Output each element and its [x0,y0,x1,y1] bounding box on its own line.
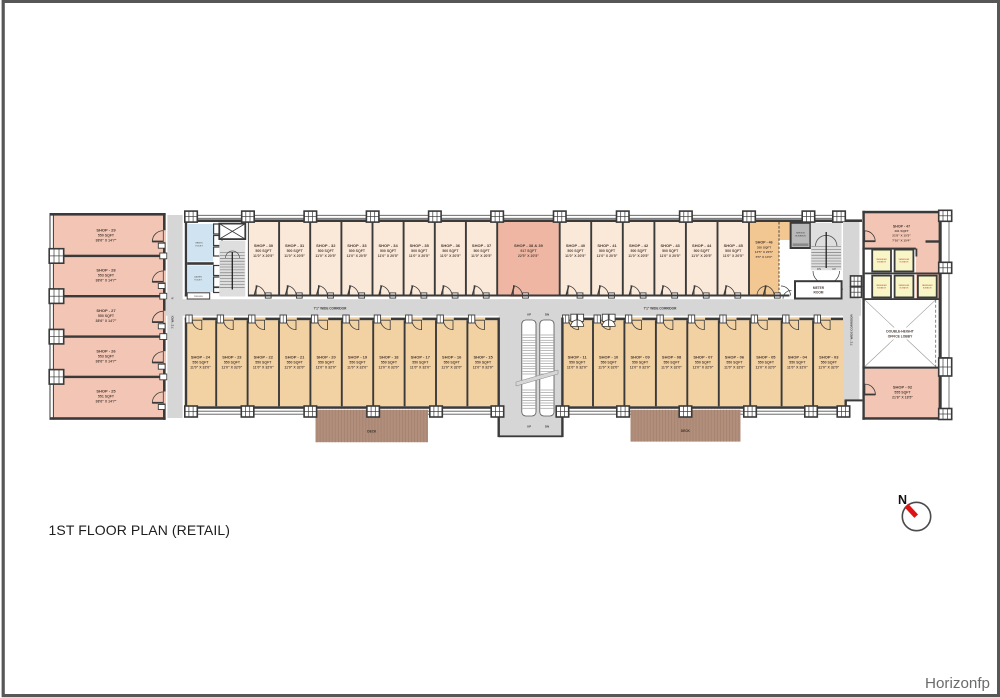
svg-text:550 SQFT: 550 SQFT [255,361,272,365]
svg-text:SHOP - 29: SHOP - 29 [96,227,116,232]
svg-text:SHOP - 43: SHOP - 43 [661,243,681,248]
svg-text:11'0" X 20'5": 11'0" X 20'5" [284,254,305,258]
svg-text:500 SQFT: 500 SQFT [255,249,272,253]
svg-text:500 SQFT: 500 SQFT [473,249,490,253]
svg-text:550 SQFT: 550 SQFT [789,361,806,365]
svg-text:Horizonfp: Horizonfp [925,675,990,692]
svg-text:491 SQFT: 491 SQFT [894,229,908,233]
svg-text:550 SQFT: 550 SQFT [663,361,680,365]
svg-text:DECK: DECK [367,429,377,433]
svg-text:550 SQFT: 550 SQFT [632,361,649,365]
svg-text:11'0" X 32'0": 11'0" X 32'0" [284,366,305,370]
svg-text:11'0" X 32'0": 11'0" X 32'0" [473,366,494,370]
svg-text:DN: DN [545,425,549,429]
svg-text:550 SQFT: 550 SQFT [821,361,838,365]
svg-text:11'0" X 32'0": 11'0" X 32'0" [253,366,274,370]
svg-text:550 SQFT: 550 SQFT [758,361,775,365]
svg-text:11'0" X 20'5": 11'0" X 20'5" [723,254,744,258]
svg-text:SHOP - 27: SHOP - 27 [96,308,116,313]
svg-text:551 SQFT: 551 SQFT [98,395,115,399]
svg-text:SHOP - 31: SHOP - 31 [285,243,305,248]
svg-text:11'0" X 20'5": 11'0" X 20'5" [378,254,399,258]
svg-text:ELEVATOR: ELEVATOR [877,286,887,289]
svg-text:SHOP - 24: SHOP - 24 [191,355,211,360]
svg-text:SHOP - 11: SHOP - 11 [568,355,588,360]
svg-text:5'5" X 14'0": 5'5" X 14'0" [756,255,773,259]
svg-text:500 SQFT: 500 SQFT [411,249,428,253]
svg-text:SHOP - 10: SHOP - 10 [599,355,619,360]
svg-text:550 SQFT: 550 SQFT [444,361,461,365]
svg-text:550 SQFT: 550 SQFT [192,361,209,365]
svg-text:500 SQFT: 500 SQFT [318,249,335,253]
svg-text:11'0" X 32'0": 11'0" X 32'0" [756,366,777,370]
svg-text:11'0" X 20'5": 11'0" X 20'5" [565,254,586,258]
svg-text:11'0" X 32'0": 11'0" X 32'0" [818,366,839,370]
svg-text:11'0" X 32'0": 11'0" X 32'0" [630,366,651,370]
svg-text:7'1" WIDE CORRIDOR: 7'1" WIDE CORRIDOR [314,306,348,310]
svg-text:ELEVATOR: ELEVATOR [923,286,933,289]
svg-text:11'0" X 32'0": 11'0" X 32'0" [724,366,745,370]
svg-text:917 SQFT: 917 SQFT [520,249,537,253]
svg-text:11'0" X 20'5": 11'0" X 20'5" [691,254,712,258]
svg-text:SHOP - 19: SHOP - 19 [348,355,368,360]
svg-text:11'0" X 32'0": 11'0" X 32'0" [598,366,619,370]
svg-text:ROOM: ROOM [814,290,824,294]
svg-text:SHOP - 37: SHOP - 37 [472,243,492,248]
svg-text:SHOP - 20: SHOP - 20 [316,355,336,360]
svg-text:PRESSURE: PRESSURE [194,296,203,298]
svg-text:555 SQFT: 555 SQFT [894,391,911,395]
svg-text:SHOP - 28: SHOP - 28 [96,268,116,273]
svg-text:ELEVATOR: ELEVATOR [900,260,910,263]
svg-text:550 SQFT: 550 SQFT [318,361,335,365]
svg-text:ELEVATOR: ELEVATOR [795,235,806,238]
svg-text:11'0" X 32'0": 11'0" X 32'0" [190,366,211,370]
svg-text:SHOP - 21: SHOP - 21 [285,355,305,360]
svg-text:SHOP - 23: SHOP - 23 [222,355,242,360]
svg-text:SHOP - 18: SHOP - 18 [379,355,399,360]
svg-text:11'0" X 32'0": 11'0" X 32'0" [379,366,400,370]
svg-text:550 SQFT: 550 SQFT [601,361,618,365]
svg-text:SHOP - 46: SHOP - 46 [755,241,772,245]
svg-text:SHOP - 38 & 39: SHOP - 38 & 39 [514,243,544,248]
svg-text:GENTS: GENTS [195,243,203,245]
svg-text:38'6" X 14'7": 38'6" X 14'7" [96,319,117,323]
svg-text:550 SQFT: 550 SQFT [98,314,115,318]
svg-text:11'0" X 20'5": 11'0" X 20'5" [315,254,336,258]
svg-text:TOILET: TOILET [194,280,202,282]
svg-text:SHOP - 06: SHOP - 06 [725,355,745,360]
svg-text:355 SQFT: 355 SQFT [757,246,771,250]
svg-text:11'0" X 20'5": 11'0" X 20'5" [660,254,681,258]
svg-text:SHOP - 30: SHOP - 30 [254,243,274,248]
svg-text:LADIES: LADIES [194,276,202,279]
svg-text:SHOP - 44: SHOP - 44 [692,243,712,248]
svg-text:TOILET: TOILET [195,246,203,248]
svg-text:SHOP - 08: SHOP - 08 [662,355,682,360]
svg-text:SHOP - 17: SHOP - 17 [411,355,431,360]
svg-text:SHOP - 33: SHOP - 33 [347,243,367,248]
svg-text:DN: DN [545,312,549,316]
svg-text:553 SQFT: 553 SQFT [98,354,115,358]
svg-text:550 SQFT: 550 SQFT [349,361,366,365]
svg-text:21'8" X 18'5": 21'8" X 18'5" [892,396,913,400]
svg-text:SHOP - 22: SHOP - 22 [254,355,274,360]
svg-text:SHOP - 47: SHOP - 47 [893,225,910,229]
svg-text:SHOP - 32: SHOP - 32 [316,243,336,248]
svg-text:SERVICE: SERVICE [796,233,805,235]
svg-text:SHOP - 15: SHOP - 15 [473,355,493,360]
svg-text:550 SQFT: 550 SQFT [695,361,712,365]
svg-text:11'0" X 32'0": 11'0" X 32'0" [693,366,714,370]
svg-text:550 SQFT: 550 SQFT [287,361,304,365]
svg-text:14'5" X 20'5": 14'5" X 20'5" [755,250,774,254]
svg-text:DECK: DECK [681,429,691,433]
svg-text:11'0" X 20'5": 11'0" X 20'5" [440,254,461,258]
svg-text:500 SQFT: 500 SQFT [287,249,304,253]
svg-text:SHOP - 05: SHOP - 05 [756,355,776,360]
svg-text:11'0" X 32'0": 11'0" X 32'0" [441,366,462,370]
svg-text:SHOP - 09: SHOP - 09 [630,355,650,360]
svg-text:38'6" X 14'7": 38'6" X 14'7" [96,359,117,363]
svg-text:SHOP - 42: SHOP - 42 [629,243,649,248]
svg-text:11'0" X 20'5": 11'0" X 20'5" [347,254,368,258]
svg-text:11'0" X 20'5": 11'0" X 20'5" [471,254,492,258]
svg-text:550 SQFT: 550 SQFT [98,233,115,237]
svg-text:500 SQFT: 500 SQFT [349,249,366,253]
svg-text:SHOP - 16: SHOP - 16 [442,355,462,360]
svg-text:500 SQFT: 500 SQFT [662,249,679,253]
svg-text:SHOP - 34: SHOP - 34 [378,243,398,248]
svg-text:500 SQFT: 500 SQFT [599,249,616,253]
svg-text:550 SQFT: 550 SQFT [569,361,586,365]
svg-text:ELEVATOR: ELEVATOR [900,286,910,289]
svg-text:SHOP - 36: SHOP - 36 [441,243,461,248]
svg-text:11'0" X 20'5": 11'0" X 20'5" [253,254,274,258]
svg-text:11'0" X 32'0": 11'0" X 32'0" [316,366,337,370]
svg-text:38'6" X 14'7": 38'6" X 14'7" [96,279,117,283]
svg-text:SHOP - 35: SHOP - 35 [410,243,430,248]
svg-text:11'0" X 20'5": 11'0" X 20'5" [628,254,649,258]
svg-text:553 SQFT: 553 SQFT [98,274,115,278]
svg-text:UP: UP [832,267,836,271]
svg-text:11'0" X 20'5": 11'0" X 20'5" [409,254,430,258]
svg-text:22'5" X 20'5": 22'5" X 20'5" [518,254,539,258]
svg-text:500 SQFT: 500 SQFT [442,249,459,253]
svg-text:7'1" WIDE CORRIDOR: 7'1" WIDE CORRIDOR [644,306,678,310]
svg-text:7'1" WIDE CORRIDOR: 7'1" WIDE CORRIDOR [850,314,854,346]
svg-text:550 SQFT: 550 SQFT [381,361,398,365]
svg-text:1ST FLOOR PLAN (RETAIL): 1ST FLOOR PLAN (RETAIL) [49,522,231,538]
svg-text:11'0" X 20'5": 11'0" X 20'5" [597,254,618,258]
svg-text:UP: UP [527,312,531,316]
svg-text:SHOP - 03: SHOP - 03 [819,355,839,360]
svg-text:500 SQFT: 500 SQFT [631,249,648,253]
svg-text:SHOP - 25: SHOP - 25 [96,389,116,394]
svg-text:11'0" X 32'0": 11'0" X 32'0" [410,366,431,370]
svg-text:SHOP - 02: SHOP - 02 [893,385,913,390]
svg-text:550 SQFT: 550 SQFT [412,361,429,365]
svg-text:ELEVATOR: ELEVATOR [877,260,887,263]
svg-text:SHOP - 26: SHOP - 26 [96,348,116,353]
svg-text:SHOP - 07: SHOP - 07 [693,355,713,360]
svg-text:500 SQFT: 500 SQFT [725,249,742,253]
svg-text:38'6" X 14'7": 38'6" X 14'7" [96,400,117,404]
svg-text:550 SQFT: 550 SQFT [224,361,241,365]
svg-text:11'0" X 32'0": 11'0" X 32'0" [661,366,682,370]
svg-text:500 SQFT: 500 SQFT [694,249,711,253]
svg-text:11'0" X 32'0": 11'0" X 32'0" [787,366,808,370]
svg-text:550 SQFT: 550 SQFT [726,361,743,365]
svg-text:550 SQFT: 550 SQFT [475,361,492,365]
svg-text:11'0" X 32'0": 11'0" X 32'0" [222,366,243,370]
svg-text:11'0" X 32'0": 11'0" X 32'0" [347,366,368,370]
svg-text:38'6" X 14'7": 38'6" X 14'7" [96,238,117,242]
svg-text:SHOP - 45: SHOP - 45 [724,243,744,248]
svg-text:7'10" X 15'4": 7'10" X 15'4" [892,238,911,242]
svg-text:500 SQFT: 500 SQFT [380,249,397,253]
svg-text:500 SQFT: 500 SQFT [567,249,584,253]
svg-text:SHOP - 40: SHOP - 40 [566,243,586,248]
svg-text:DOUBLE-HEIGHT: DOUBLE-HEIGHT [886,330,913,334]
svg-text:21'8" X 15'3": 21'8" X 15'3" [892,234,911,238]
svg-text:SHOP - 04: SHOP - 04 [788,355,808,360]
svg-text:11'0" X 32'0": 11'0" X 32'0" [567,366,588,370]
svg-text:DN: DN [817,267,821,271]
svg-text:SHOP - 41: SHOP - 41 [597,243,617,248]
svg-text:OFFICE LOBBY: OFFICE LOBBY [888,335,913,339]
svg-text:UP: UP [527,425,531,429]
svg-text:N: N [898,493,907,507]
